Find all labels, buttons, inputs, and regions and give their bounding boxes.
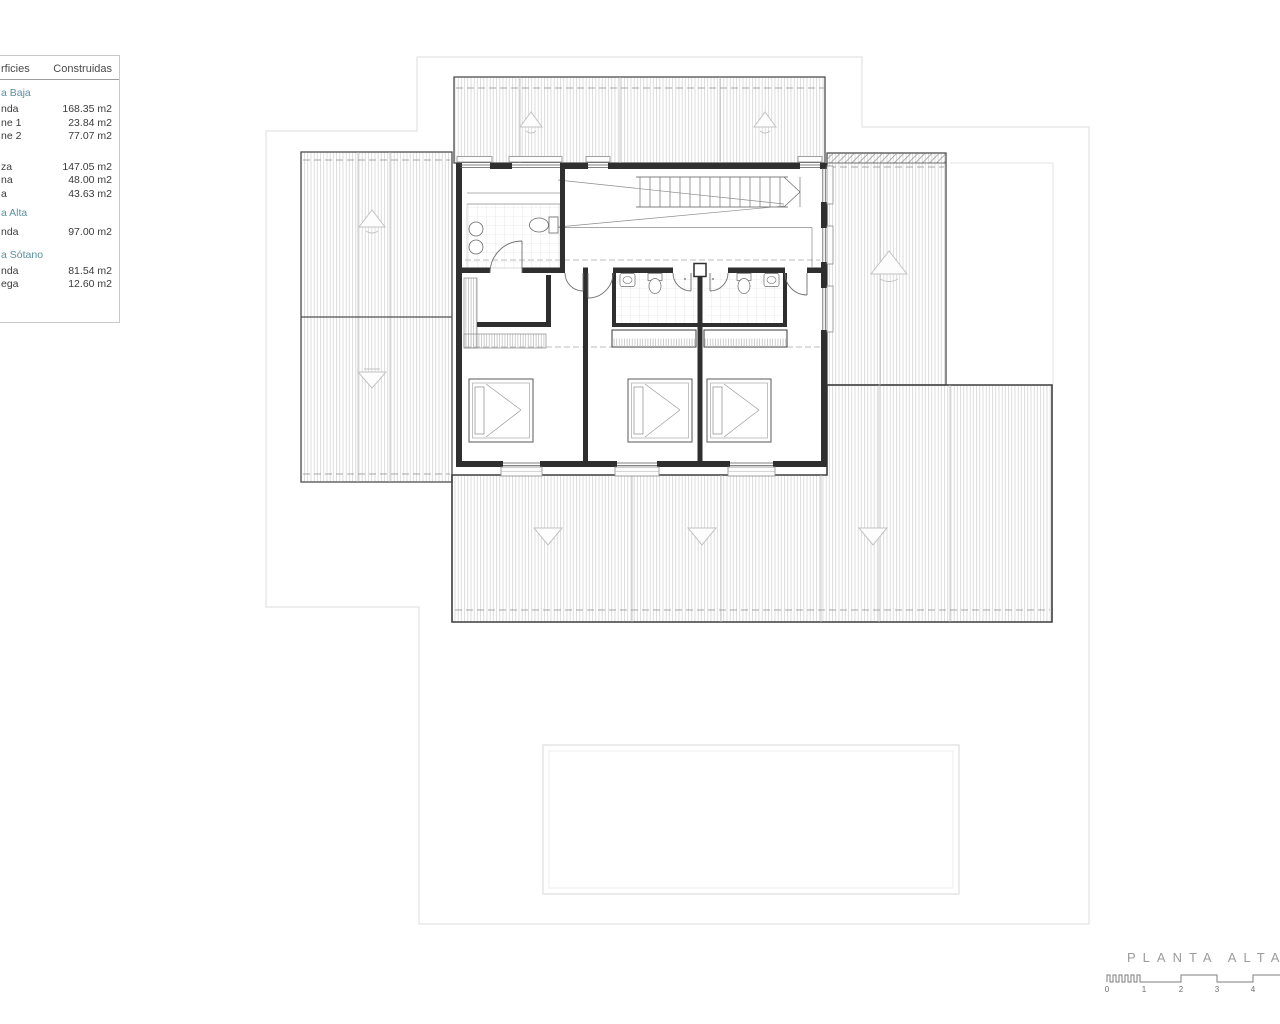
floor-plan-drawing xyxy=(0,0,1280,1024)
table-section-planta-baja: a Baja nda 168.35 m2 ne 1 23.84 m2 ne 2 … xyxy=(1,87,112,144)
bed xyxy=(469,379,533,442)
table-row: nda 97.00 m2 xyxy=(1,226,112,240)
column-post xyxy=(694,264,706,277)
house-interior xyxy=(456,163,827,467)
bathroom-centre-left xyxy=(616,273,697,323)
table-row: a 43.63 m2 xyxy=(1,188,112,202)
sink-icon xyxy=(469,240,483,254)
table-row: ega 12.60 m2 xyxy=(1,278,112,292)
table-row: na 48.00 m2 xyxy=(1,174,112,188)
table-section-exterior: za 147.05 m2 na 48.00 m2 a 43.63 m2 xyxy=(1,161,112,202)
scale-label: 3 xyxy=(1215,985,1220,994)
table-row: za 147.05 m2 xyxy=(1,161,112,175)
bathroom-top-left xyxy=(467,193,560,268)
surfaces-table: rficies Construidas a Baja nda 168.35 m2… xyxy=(0,55,120,323)
surfaces-table-header: rficies Construidas xyxy=(0,56,119,80)
drawing-title: PLANTA ALTA xyxy=(1127,950,1280,965)
table-row: ne 2 77.07 m2 xyxy=(1,130,112,144)
table-section-planta-sotano: a Sótano nda 81.54 m2 ega 12.60 m2 xyxy=(1,249,112,292)
table-section-planta-alta: a Alta nda 97.00 m2 xyxy=(1,207,112,240)
bed xyxy=(628,379,692,442)
section-title: a Sótano xyxy=(1,249,112,261)
table-header-right: Construidas xyxy=(53,63,112,75)
section-title: a Baja xyxy=(1,87,112,99)
scale-label: 2 xyxy=(1179,985,1184,994)
scale-label: 4 xyxy=(1251,985,1256,994)
table-row: ne 1 23.84 m2 xyxy=(1,117,112,131)
pool-outline xyxy=(543,745,959,894)
bed xyxy=(707,379,771,442)
table-row: nda 81.54 m2 xyxy=(1,265,112,279)
section-title: a Alta xyxy=(1,207,112,219)
sink-icon xyxy=(620,274,635,287)
table-row: nda 168.35 m2 xyxy=(1,103,112,117)
sink-icon xyxy=(469,222,483,236)
scale-label: 1 xyxy=(1142,985,1147,994)
toilet-icon xyxy=(549,217,558,233)
roof-right-wing-hatch xyxy=(827,153,946,163)
scale-bar: 0 1 2 3 4 xyxy=(1100,968,1280,996)
bathroom-centre-right xyxy=(706,273,783,323)
sink-icon xyxy=(764,274,779,287)
toilet-icon xyxy=(530,218,549,232)
table-header-left: rficies xyxy=(1,63,30,75)
scale-bar-line xyxy=(1107,975,1280,982)
scale-label: 0 xyxy=(1105,985,1110,994)
